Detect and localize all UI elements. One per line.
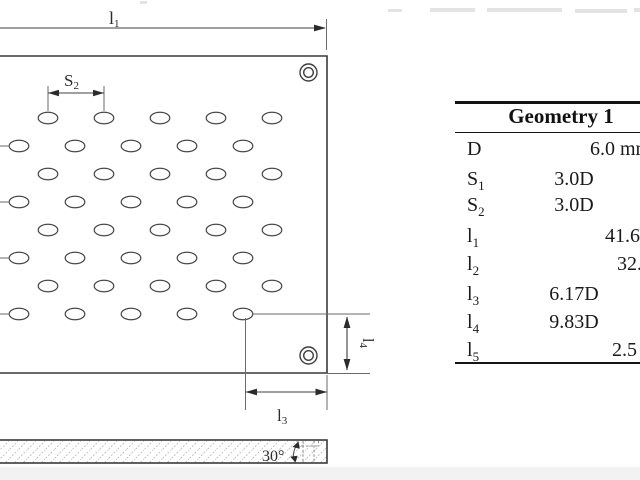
plate-hole: [121, 140, 141, 151]
plate-hole: [233, 252, 253, 263]
corner-screw-top-right: [300, 64, 317, 81]
dimension-l4: l4: [253, 314, 376, 374]
plate-hole: [94, 224, 114, 235]
table-row: D 6.0 mm: [455, 138, 640, 164]
param-label: l1: [467, 225, 479, 248]
left-leader-stubs: [0, 146, 10, 314]
plate-hole: [262, 280, 282, 291]
table-row: l4 9.83D: [455, 311, 640, 337]
table-row: S1 3.0D: [455, 168, 640, 194]
plate-hole: [65, 196, 85, 207]
table-row: l1 41.6: [455, 225, 640, 251]
hole-grid: [9, 112, 282, 319]
value-in-d: 6.17D: [540, 283, 608, 306]
table-row: l2 32.: [455, 253, 640, 279]
dim-label-l3: l3: [277, 406, 288, 427]
table-row: l3 6.17D: [455, 283, 640, 309]
plate-hole: [262, 112, 282, 123]
plate-hole: [121, 196, 141, 207]
section-angle-label: 30°: [262, 448, 284, 465]
plate-hole: [177, 308, 197, 319]
arrowhead-right-icon: [316, 389, 328, 396]
value-in-d: 3.0D: [540, 194, 608, 217]
dim-label-l4: l4: [357, 338, 376, 348]
top-edge-artifacts: [140, 1, 640, 13]
plate-hole: [150, 224, 170, 235]
arrowhead-left-icon: [246, 389, 258, 396]
plate-hole: [121, 308, 141, 319]
table-title: Geometry 1: [455, 104, 640, 130]
plate-hole: [38, 224, 58, 235]
param-label: l3: [467, 283, 479, 306]
plate-hole: [94, 168, 114, 179]
table-row: S2 3.0D: [455, 194, 640, 220]
section-view: 30°: [0, 440, 327, 465]
arrowhead-right-icon: [314, 25, 326, 32]
plate-hole: [38, 280, 58, 291]
plate-hole: [150, 112, 170, 123]
arrowhead-left-icon: [48, 90, 59, 96]
plate-hole: [150, 168, 170, 179]
dimension-l1: l1: [0, 8, 327, 50]
param-label: l5: [467, 339, 479, 362]
table-bottom-border: [455, 362, 640, 365]
corner-screw-bottom-right: [300, 347, 317, 364]
plate-hole: [38, 112, 58, 123]
plate-hole: [262, 168, 282, 179]
dimension-s2: S2: [48, 71, 104, 111]
plate-hole: [94, 112, 114, 123]
arrowhead-right-icon: [93, 90, 104, 96]
plate-hole: [177, 252, 197, 263]
plate-hole: [150, 280, 170, 291]
plate-hole: [65, 140, 85, 151]
plate-hole: [65, 252, 85, 263]
plate-hole: [262, 224, 282, 235]
param-label: l4: [467, 311, 479, 334]
value-absolute: 6.0 mm: [590, 138, 640, 161]
plate-hole: [94, 280, 114, 291]
plate-hole: [206, 224, 226, 235]
plate-hole: [65, 308, 85, 319]
plate-hole: [206, 168, 226, 179]
plate-hole: [9, 252, 29, 263]
plate-hole: [233, 140, 253, 151]
plate-outline: [0, 56, 327, 373]
param-label: D: [467, 138, 481, 161]
plate-hole: [9, 196, 29, 207]
param-label: l2: [467, 253, 479, 276]
plate-hole: [121, 252, 141, 263]
plate-hole: [177, 140, 197, 151]
value-in-d: 3.0D: [540, 168, 608, 191]
arrowhead-down-icon: [344, 359, 351, 371]
plate-hole: [233, 308, 253, 319]
plate-hole: [206, 280, 226, 291]
plate-hole: [233, 196, 253, 207]
plate-hole: [206, 112, 226, 123]
param-label: S1: [467, 168, 485, 191]
plate-hole: [38, 168, 58, 179]
dim-label-s2: S2: [64, 71, 79, 92]
table-header-rule: [455, 132, 640, 133]
plate-hole: [177, 196, 197, 207]
arrowhead-up-icon: [344, 317, 351, 329]
bottom-grey-strip: [0, 467, 640, 480]
value-absolute: 32.: [617, 253, 640, 276]
plate-hole: [9, 140, 29, 151]
value-absolute: 2.5: [612, 339, 637, 362]
value-in-d: 9.83D: [540, 311, 608, 334]
param-label: S2: [467, 194, 485, 217]
value-absolute: 41.6: [605, 225, 640, 248]
dim-label-l1: l1: [109, 8, 120, 30]
plate-hole: [9, 308, 29, 319]
